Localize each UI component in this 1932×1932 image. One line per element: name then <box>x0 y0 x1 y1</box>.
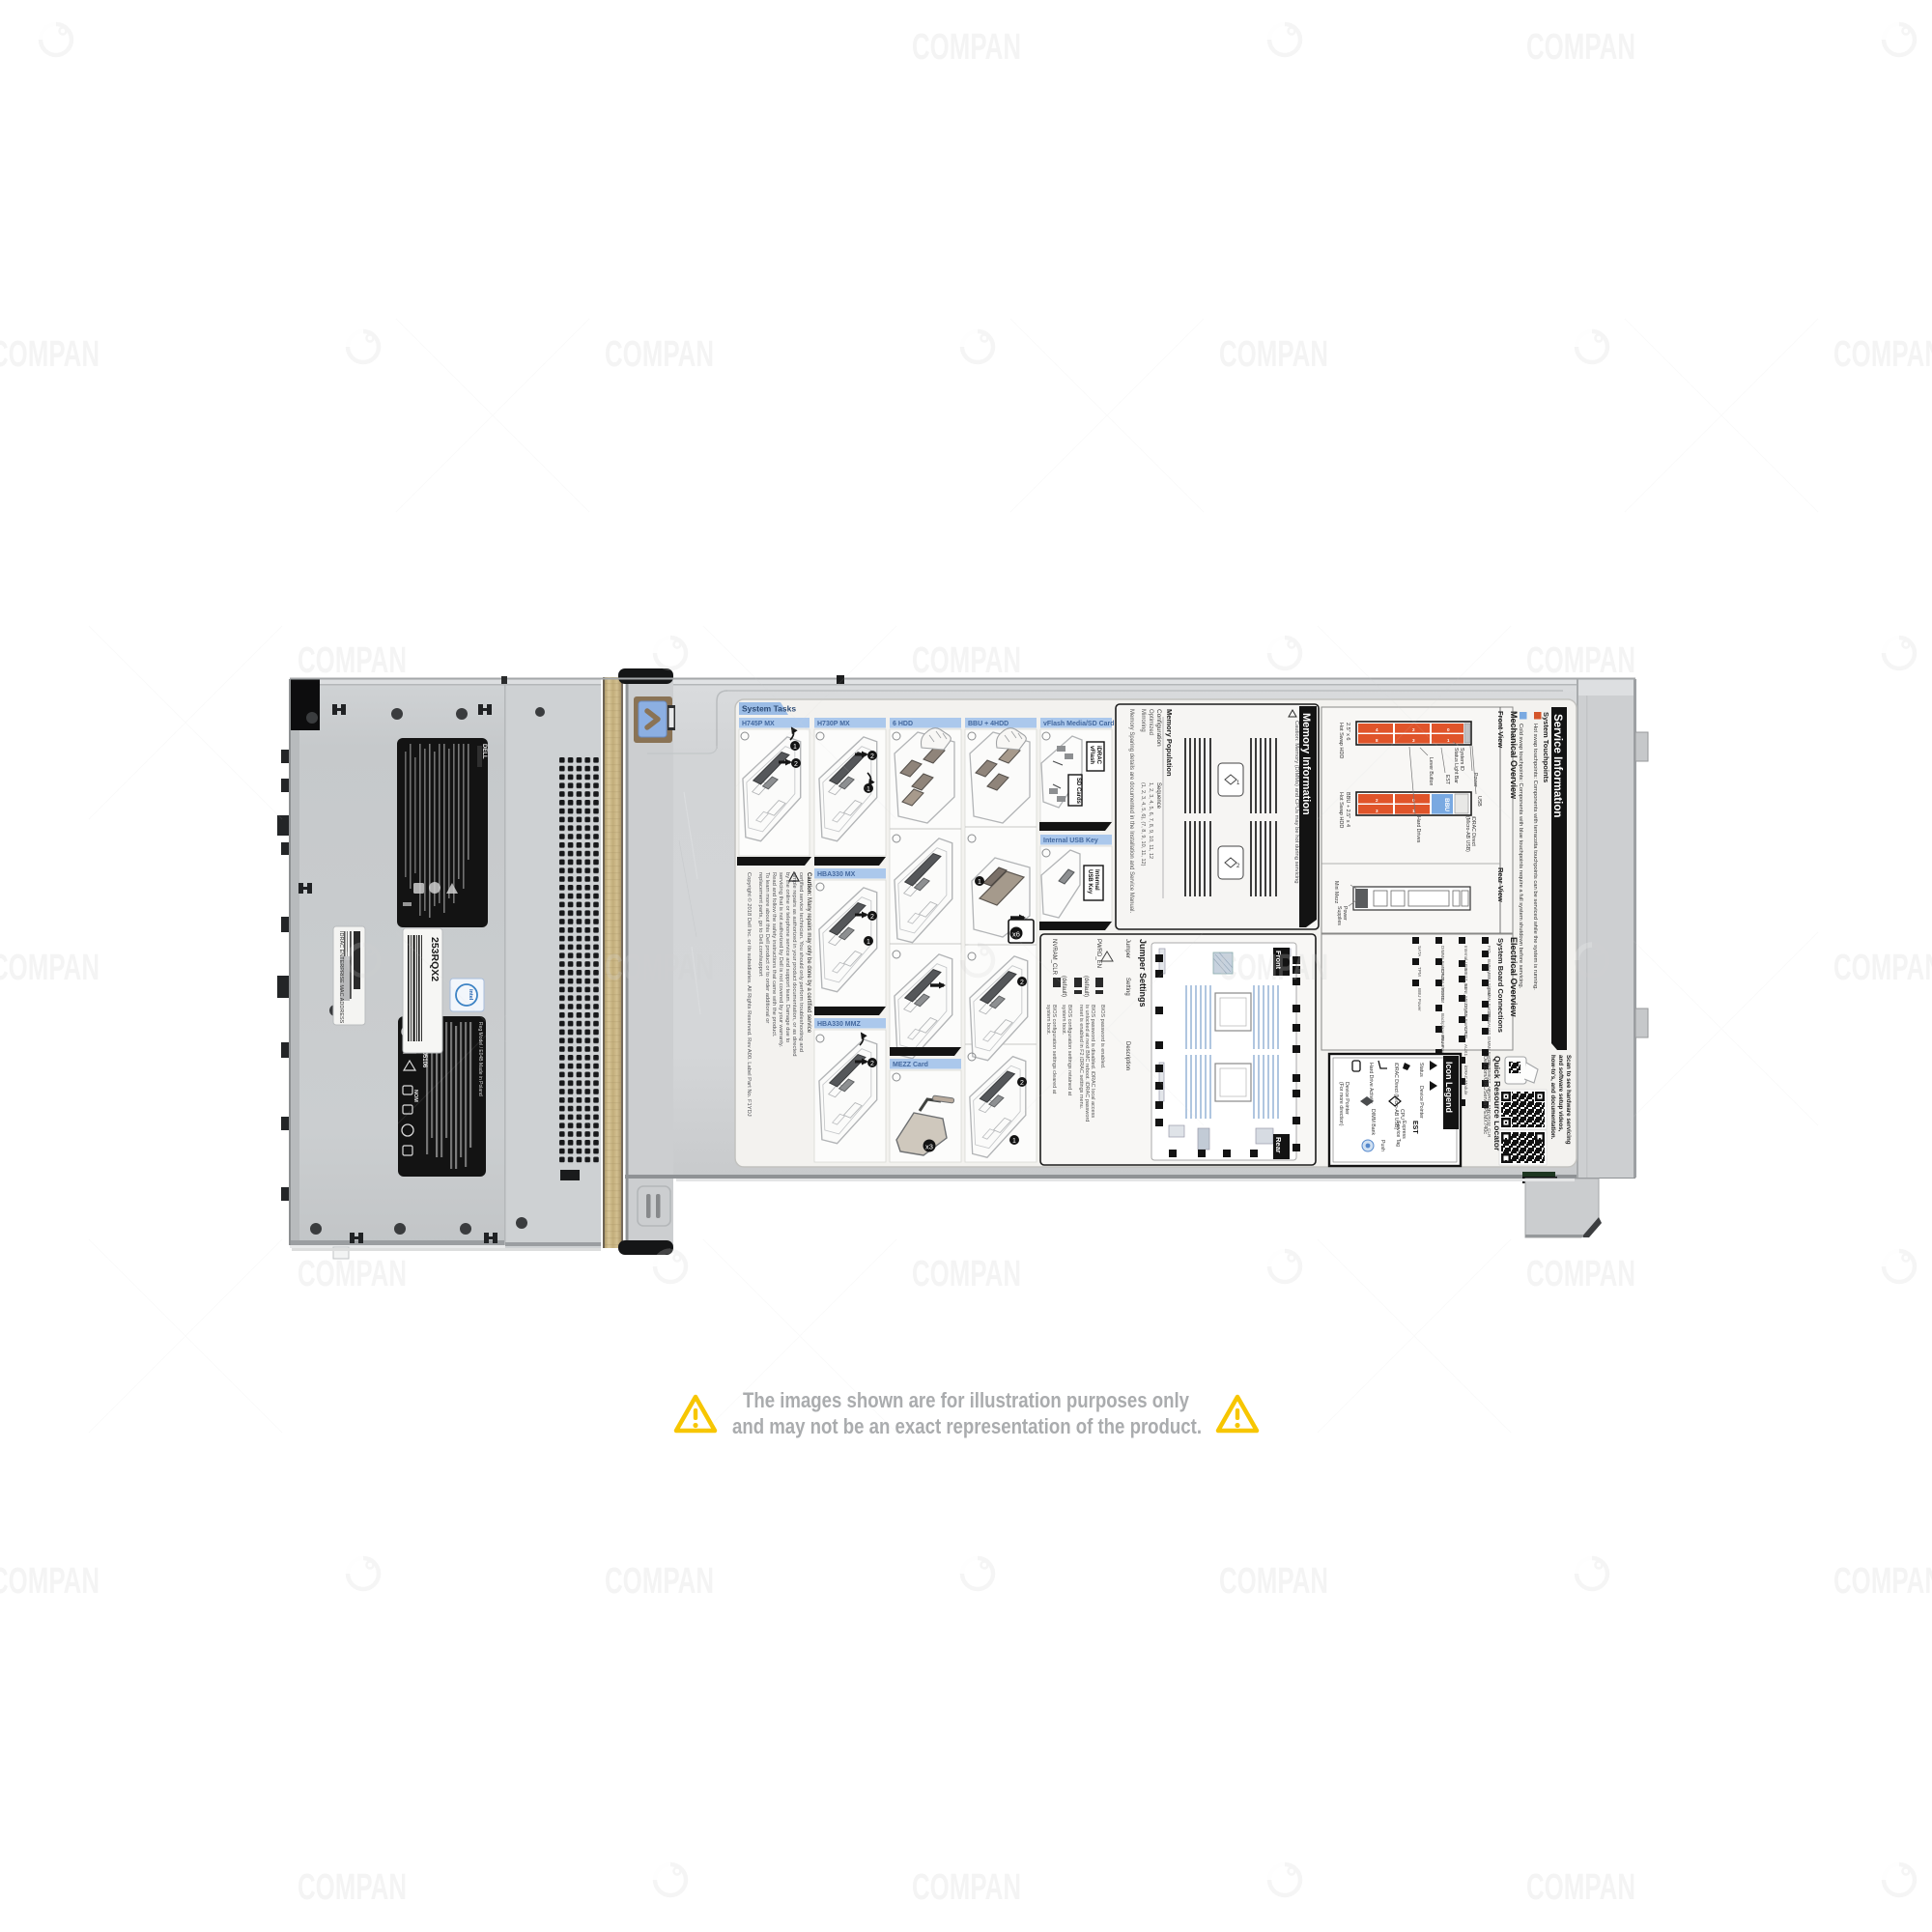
svg-text:iDRAC Module: iDRAC Module <box>1463 1065 1468 1095</box>
svg-text:Hard Drives: Hard Drives <box>1415 816 1421 843</box>
svg-text:Battery: Battery <box>1487 959 1492 974</box>
svg-text:SD Cards: SD Cards <box>1075 778 1081 805</box>
svg-text:6 HDD: 6 HDD <box>893 721 913 727</box>
svg-text:USB Key: USB Key <box>1087 869 1093 895</box>
svg-text:Cold swap touchpoints: Compone: Cold swap touchpoints: Components with b… <box>1518 724 1523 989</box>
svg-text:iDRAC: iDRAC <box>1095 746 1101 765</box>
svg-text:Hot swap touchpoints: Componen: Hot swap touchpoints: Components with te… <box>1532 724 1538 990</box>
svg-text:H730P MX: H730P MX <box>817 721 850 727</box>
svg-text:Supplies: Supplies <box>1336 906 1342 925</box>
svg-text:simple repairs as authorized i: simple repairs as authorized in your pro… <box>791 872 797 1056</box>
svg-text:2: 2 <box>1020 1080 1024 1087</box>
svg-text:Scan to see hardware servicing: Scan to see hardware servicing <box>1565 1055 1572 1145</box>
svg-text:2: 2 <box>1412 727 1415 732</box>
svg-text:CPU: CPU <box>1399 1109 1405 1120</box>
svg-text:2: 2 <box>1020 980 1024 986</box>
svg-text:1: 1 <box>978 879 981 886</box>
svg-text:Service Information: Service Information <box>1551 714 1563 817</box>
svg-text:PERC: PERC <box>1440 988 1445 1001</box>
svg-text:Rear: Rear <box>1274 1137 1283 1153</box>
svg-text:Hot Swap HDD: Hot Swap HDD <box>1338 723 1344 758</box>
svg-text:1: 1 <box>867 939 870 946</box>
svg-text:0: 0 <box>1447 727 1450 732</box>
svg-text:2: 2 <box>1376 798 1378 803</box>
svg-text:and may not be an exact repres: and may not be an exact representation o… <box>732 1414 1202 1438</box>
svg-text:BBU + 4HDD: BBU + 4HDD <box>968 721 1009 727</box>
svg-text:Device Pointer: Device Pointer <box>1418 1086 1424 1119</box>
svg-text:BBU + 2.5" x 4: BBU + 2.5" x 4 <box>1345 792 1350 827</box>
svg-text:by the online or telephone ser: by the online or telephone service and s… <box>784 872 790 1042</box>
svg-text:PWRD_EN: PWRD_EN <box>1095 939 1101 968</box>
svg-text:Mini Mezz: Mini Mezz <box>1333 881 1339 904</box>
svg-text:1, 2, 3, 4, 5, 6, 7, 8, 9, 10,: 1, 2, 3, 4, 5, 6, 7, 8, 9, 10, 11, 12 <box>1148 782 1153 859</box>
svg-text:HBA330 MMZ: HBA330 MMZ <box>817 1021 861 1028</box>
svg-text:Internal: Internal <box>1094 869 1099 891</box>
svg-text:8: 8 <box>1376 738 1378 743</box>
svg-text:Internal USB Key: Internal USB Key <box>1043 838 1098 844</box>
svg-text:(Micro-AB USB): (Micro-AB USB) <box>1464 816 1470 852</box>
svg-text:2: 2 <box>870 1061 874 1067</box>
svg-text:Dell.com/QRL/Server/PEMX740c: Dell.com/QRL/Server/PEMX740c <box>1482 1056 1488 1134</box>
svg-text:TPM: TPM <box>1417 967 1422 977</box>
svg-text:System Touchpoints: System Touchpoints <box>1542 712 1550 782</box>
svg-text:Jumper: Jumper <box>1124 939 1130 958</box>
svg-text:Caution: Many repairs may onl: Caution: Many repairs may only be done b… <box>806 872 811 1034</box>
svg-text:BIOS password is enabled.: BIOS password is enabled. <box>1099 1005 1105 1069</box>
svg-text:AUX0: AUX0 <box>1487 1023 1492 1035</box>
svg-text:2.5" x 6: 2.5" x 6 <box>1345 723 1350 740</box>
svg-text:System Board Connections: System Board Connections <box>1496 938 1505 1033</box>
svg-text:Memory Population: Memory Population <box>1165 709 1174 777</box>
svg-text:System Tasks: System Tasks <box>742 704 796 714</box>
svg-text:servicing that is not authoriz: servicing that is not authorized by Dell… <box>778 872 783 1047</box>
svg-text:Internal USB: Internal USB <box>1463 946 1468 971</box>
svg-text:Copyright © 2018 Dell Inc. or: Copyright © 2018 Dell Inc. or its subsid… <box>746 872 753 1117</box>
svg-text:Electrical Overview: Electrical Overview <box>1509 937 1519 1018</box>
svg-text:IDRAC ENTERPRISE MAC ADDRESS: IDRAC ENTERPRISE MAC ADDRESS <box>338 931 344 1024</box>
svg-text:COMPAN: COMPAN <box>298 640 407 681</box>
svg-text:how-to's, and documentation.: how-to's, and documentation. <box>1549 1055 1556 1140</box>
svg-text:Mirroring: Mirroring <box>1140 709 1146 732</box>
svg-text:Read and follow the safety ins: Read and follow the safety instructions … <box>771 872 777 1037</box>
svg-text:Mechanical Overview: Mechanical Overview <box>1509 711 1519 800</box>
svg-text:Front View: Front View <box>1496 711 1505 748</box>
svg-text:(default): (default) <box>1083 976 1089 997</box>
svg-text:Setting: Setting <box>1124 978 1130 996</box>
svg-text:HBA330 MX: HBA330 MX <box>817 871 856 878</box>
svg-text:Lever Button: Lever Button <box>1428 757 1434 786</box>
svg-text:vFlash: vFlash <box>1089 746 1094 764</box>
svg-text:replacement parts, go to Dell.: replacement parts, go to Dell.com/suppor… <box>757 872 763 977</box>
svg-text:Configuration: Configuration <box>1155 709 1162 747</box>
svg-text:AUX2: AUX2 <box>1463 1025 1468 1037</box>
svg-text:Memory Information: Memory Information <box>1300 713 1312 815</box>
svg-text:USB: USB <box>1476 796 1482 807</box>
svg-text:NVRAM_CLR: NVRAM_CLR <box>1051 939 1057 976</box>
svg-text:H745P MX: H745P MX <box>742 721 775 727</box>
svg-text:1: 1 <box>793 744 797 751</box>
svg-text:Status: Status <box>1418 1063 1424 1077</box>
svg-text:Push: Push <box>1379 1140 1385 1151</box>
svg-text:(default): (default) <box>1061 976 1066 997</box>
svg-text:x3: x3 <box>925 1143 933 1151</box>
svg-text:x6: x6 <box>1012 930 1020 939</box>
svg-text:The images shown are for illus: The images shown are for illustration pu… <box>743 1388 1190 1412</box>
svg-text:AUX1: AUX1 <box>1463 1044 1468 1056</box>
svg-text:To learn more about this Dell: To learn more about this Dell product or… <box>764 872 770 1023</box>
svg-text:Icon Legend: Icon Legend <box>1444 1062 1454 1113</box>
svg-text:BBU: BBU <box>1443 798 1450 811</box>
svg-text:Service Tag: Service Tag <box>1395 1121 1401 1147</box>
svg-text:NOM: NOM <box>412 1090 418 1102</box>
svg-text:Description: Description <box>1124 1041 1130 1070</box>
svg-text:EST: EST <box>1411 1121 1418 1134</box>
svg-text:2: 2 <box>870 753 874 760</box>
svg-text:intel: intel <box>468 989 473 1001</box>
svg-text:3: 3 <box>1376 809 1378 813</box>
svg-text:FIO: FIO <box>1487 946 1492 953</box>
svg-text:CPU1: CPU1 <box>1487 1009 1492 1022</box>
svg-text:Rear View: Rear View <box>1496 867 1505 902</box>
svg-text:1: 1 <box>1447 738 1450 743</box>
svg-text:DIMM Bank: DIMM Bank <box>1370 1109 1376 1136</box>
svg-text:1: 1 <box>1012 1138 1016 1145</box>
svg-text:Caution: Memory (DIMMs) and C: Caution: Memory (DIMMs) and CPUs may be … <box>1293 721 1299 884</box>
svg-text:EST: EST <box>1444 775 1450 785</box>
svg-text:4: 4 <box>1376 727 1378 732</box>
svg-text:Sequence: Sequence <box>1155 782 1161 810</box>
svg-text:Reg Model / E04B Made in Pola: Reg Model / E04B Made in Poland <box>477 1022 483 1096</box>
svg-text:2: 2 <box>794 761 798 768</box>
svg-text:system boot.: system boot. <box>1045 1005 1051 1036</box>
svg-text:MEZZ Card: MEZZ Card <box>893 1062 928 1068</box>
svg-text:system boot.: system boot. <box>1061 1005 1066 1036</box>
svg-text:2: 2 <box>870 914 874 921</box>
svg-text:(1, 2, 3, 4, 5, 6), (7, 8, 9,: (1, 2, 3, 4, 5, 6), (7, 8, 9, 10, 11, 12… <box>1140 782 1146 867</box>
svg-text:certified service technician.: certified service technician. You should… <box>798 872 804 1052</box>
svg-text:(For more direction): (For more direction) <box>1338 1082 1344 1126</box>
svg-text:Memory Sparing details are doc: Memory Sparing details are documented in… <box>1128 709 1134 913</box>
svg-text:vFlash Media/SD Card: vFlash Media/SD Card <box>1043 721 1115 727</box>
svg-text:3: 3 <box>1412 738 1415 743</box>
svg-text:BBU Power: BBU Power <box>1417 988 1422 1011</box>
svg-text:SATA: SATA <box>1417 946 1422 957</box>
svg-text:and software setup videos,: and software setup videos, <box>1557 1055 1564 1132</box>
svg-text:Optimized: Optimized <box>1148 709 1153 735</box>
